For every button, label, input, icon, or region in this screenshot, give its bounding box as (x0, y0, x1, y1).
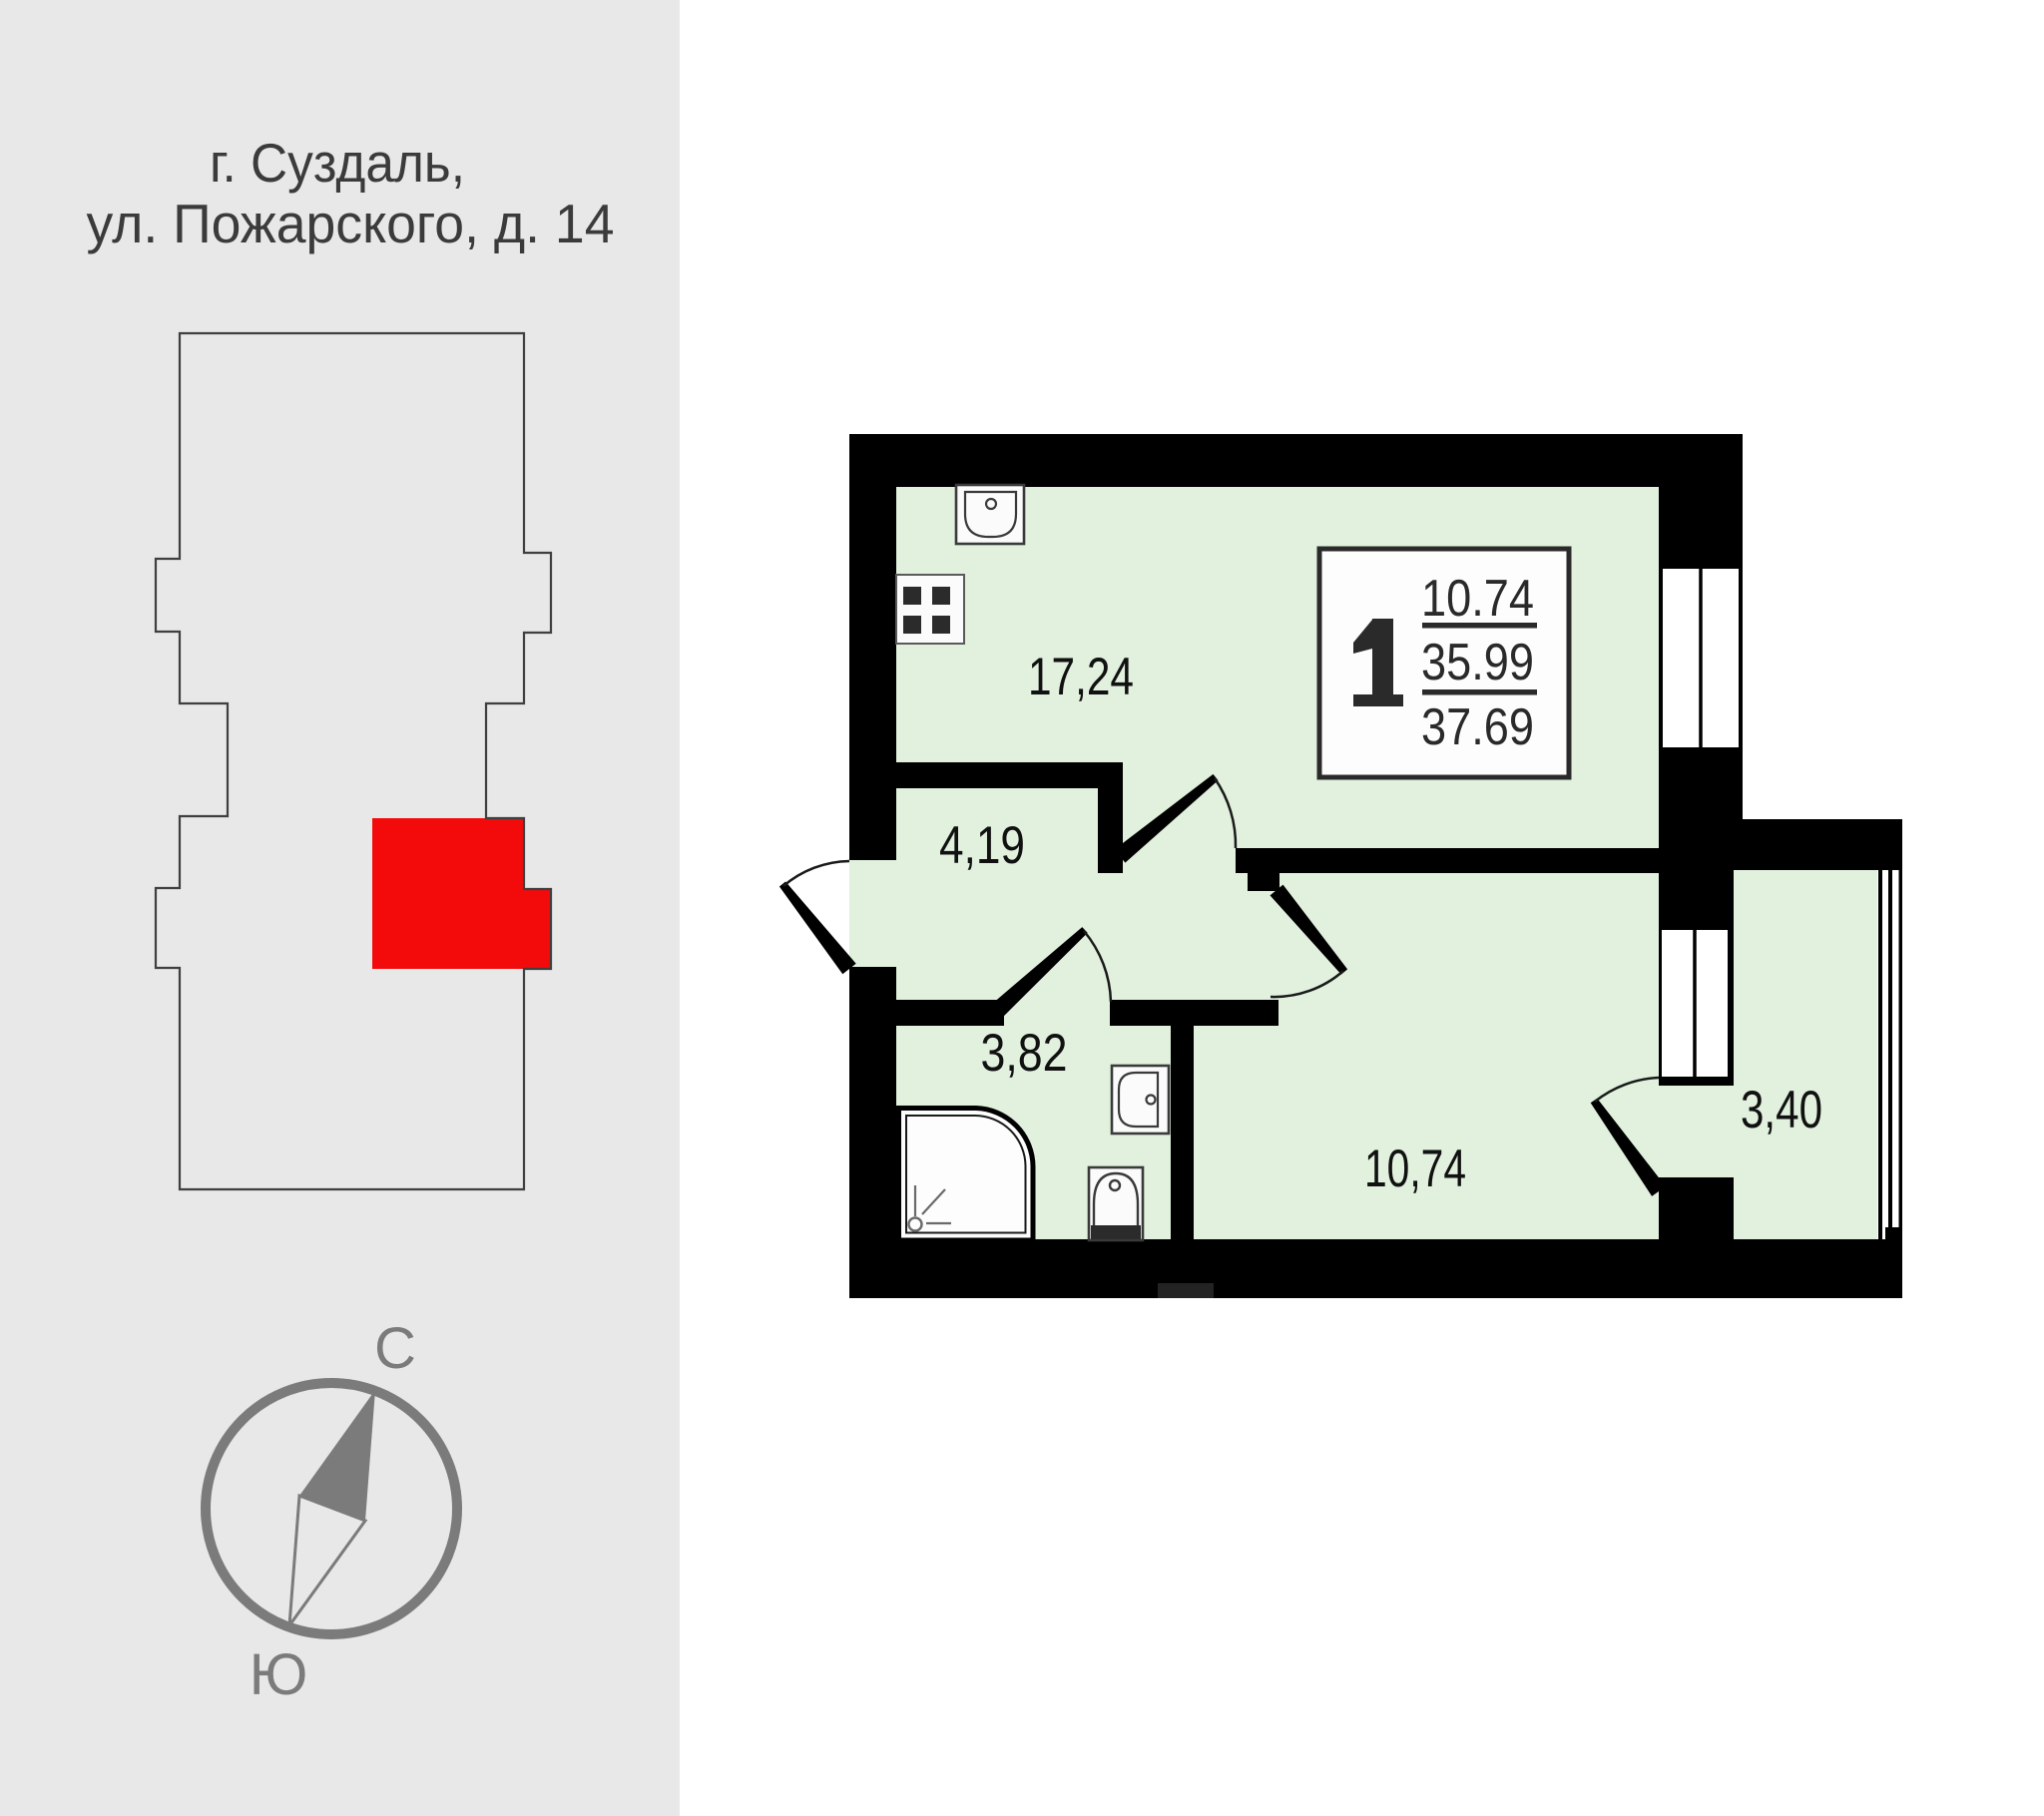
svg-text:3,40: 3,40 (1741, 1081, 1822, 1139)
svg-text:ул. Пожарского, д. 14: ул. Пожарского, д. 14 (87, 193, 615, 254)
svg-text:10,74: 10,74 (1364, 1139, 1466, 1198)
svg-text:17,24: 17,24 (1028, 648, 1134, 706)
svg-text:4,19: 4,19 (939, 816, 1025, 875)
svg-text:10.74: 10.74 (1421, 570, 1534, 628)
svg-text:г. Суздаль,: г. Суздаль, (210, 132, 465, 194)
svg-text:35.99: 35.99 (1421, 634, 1534, 691)
svg-text:С: С (374, 1316, 416, 1381)
svg-text:3,82: 3,82 (981, 1024, 1068, 1083)
svg-text:Ю: Ю (250, 1642, 308, 1707)
svg-text:37.69: 37.69 (1421, 698, 1534, 756)
